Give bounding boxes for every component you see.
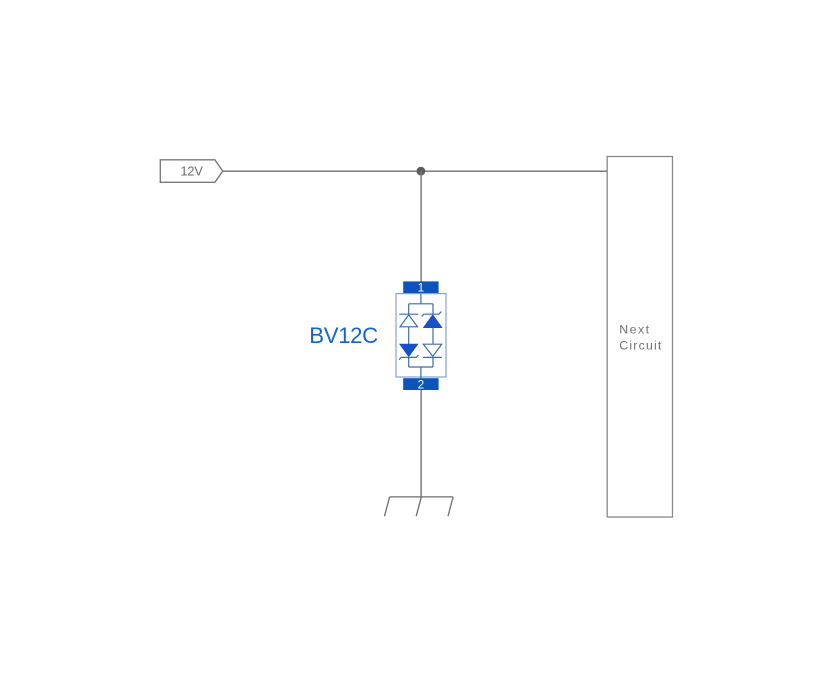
svg-text:2: 2 (418, 377, 425, 391)
svg-text:12V: 12V (180, 164, 203, 179)
svg-text:Circuit: Circuit (619, 339, 662, 353)
svg-text:1: 1 (418, 281, 425, 295)
svg-text:Next: Next (619, 322, 650, 336)
svg-text:BV12C: BV12C (309, 323, 378, 348)
